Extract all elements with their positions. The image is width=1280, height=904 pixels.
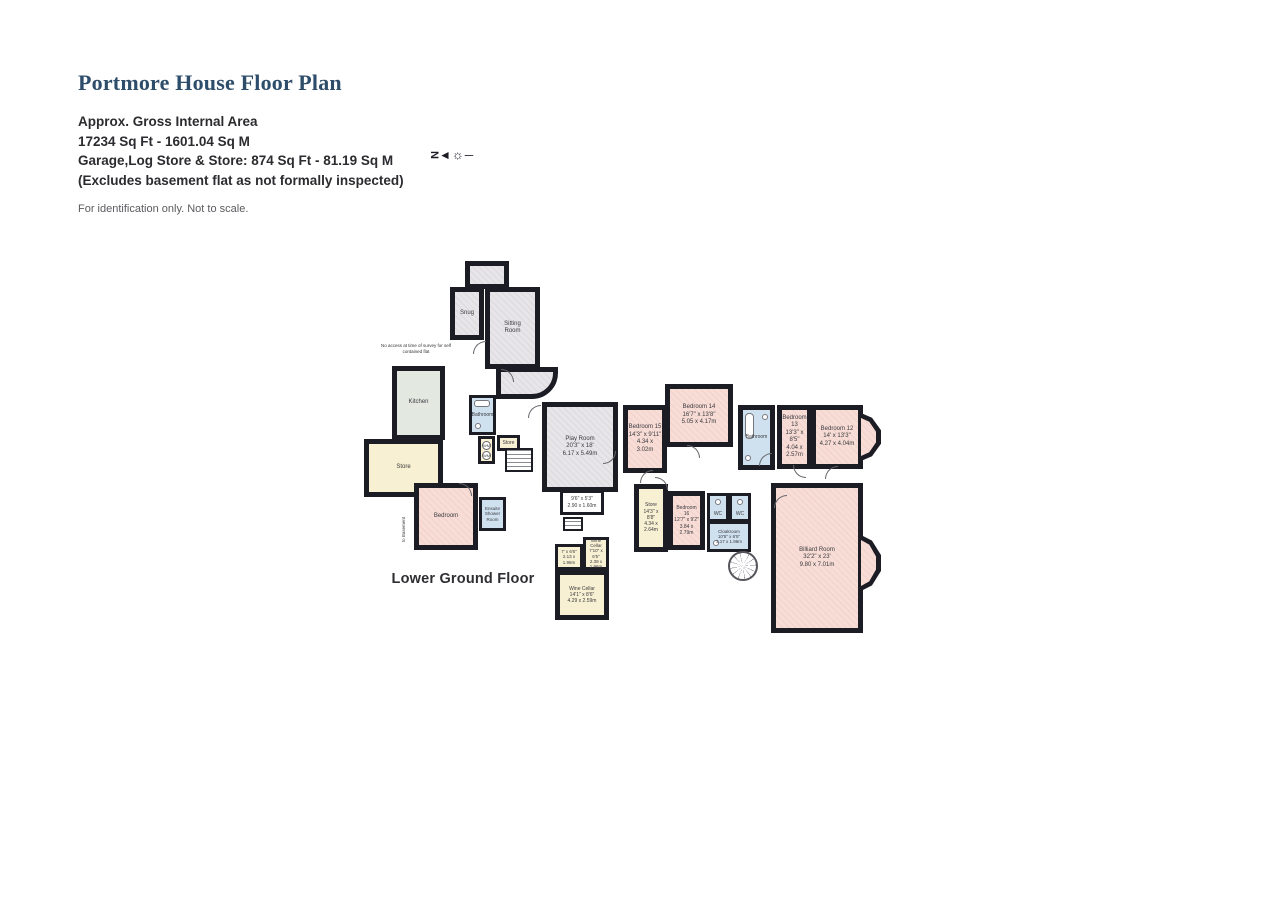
room-ensuite-shower: Ensuite Shower Room <box>479 497 506 531</box>
room-label: WC <box>714 511 722 517</box>
room-dims-ft: 14'3" x 9'11" <box>629 432 661 440</box>
room-label: Bedroom 16 <box>673 505 700 518</box>
room-dims-m: 2.13 x 1.98m <box>558 554 580 564</box>
room-label: Play Room <box>565 436 594 444</box>
room-dims-ft: 14' x 13'3" <box>823 433 850 441</box>
room-dims-ft: 7'10" x 6'5" <box>586 548 606 558</box>
room-bedroom-15: Bedroom 15 14'3" x 9'11" 4.34 x 3.02m <box>623 405 667 473</box>
staircase-cellar <box>563 517 583 531</box>
washing-machine-icon: WM <box>482 451 491 460</box>
room-label: Bedroom <box>434 513 458 521</box>
room-label: Ensuite Shower Room <box>484 506 502 522</box>
room-label: Kitchen <box>408 399 428 407</box>
room-bedroom-13: Bedroom 13 13'3" x 8'5" 4.04 x 2.57m <box>777 405 812 469</box>
room-label: Bedroom 13 <box>782 415 807 430</box>
room-sitting: Sitting Room <box>485 287 540 369</box>
room-tower-top <box>465 261 509 289</box>
compass-arrow-icon: ◄ <box>439 148 451 162</box>
room-utility-nook: WM WM <box>478 436 495 464</box>
room-dims-m: 5.05 x 4.17m <box>682 419 717 427</box>
area-line-3: Garage,Log Store & Store: 874 Sq Ft - 81… <box>78 151 558 171</box>
room-dims-ft: 32'2" x 23' <box>803 554 830 562</box>
door-arc-icon <box>473 341 486 354</box>
area-line-4: (Excludes basement flat as not formally … <box>78 171 558 191</box>
room-cellar-a: 7' x 6'6" 2.13 x 1.98m <box>555 544 583 570</box>
room-label: Bathroom <box>472 412 494 418</box>
room-dims-m: 4.34 x 3.02m <box>628 439 662 454</box>
room-dims-m: 6.17 x 5.49m <box>563 451 598 459</box>
no-access-note: No access at time of survey for self con… <box>380 343 452 355</box>
room-dims-m: 3.17 x 1.96m <box>716 539 742 544</box>
washing-machine-icon: WM <box>482 441 491 450</box>
floor-label: Lower Ground Floor <box>383 571 543 587</box>
room-dims-m: 9.80 x 7.01m <box>800 562 835 570</box>
room-label: Bedroom 15 <box>629 424 662 432</box>
room-dims-ft: 16'7" x 13'8" <box>683 412 716 420</box>
room-label: Sitting Room <box>500 321 526 336</box>
room-wine-cellar: Wine Cellar 14'1" x 8'6" 4.29 x 2.59m <box>555 570 609 620</box>
room-bedroom-12: Bedroom 12 14' x 13'3" 4.27 x 4.04m <box>811 405 863 469</box>
room-play: Play Room 20'3" x 18' 6.17 x 5.49m <box>542 402 618 492</box>
room-dims-m: 2.90 x 1.60m <box>568 503 597 509</box>
room-cloakroom: Cloakroom 10'5" x 6'5" 3.17 x 1.96m <box>707 521 751 552</box>
compass-sun-icon: ☼ <box>452 147 464 162</box>
room-bedroom-14: Bedroom 14 16'7" x 13'8" 5.05 x 4.17m <box>665 384 733 447</box>
door-arc-icon <box>528 405 541 418</box>
staircase-main <box>505 448 533 472</box>
compass-icon: N◄☼─ <box>430 147 473 162</box>
room-label: Bathroom <box>746 434 768 440</box>
room-dims-ft: 20'3" x 18' <box>566 443 593 451</box>
bay-window-billiard <box>861 535 881 591</box>
room-dims-m: 4.27 x 4.04m <box>820 441 855 449</box>
door-arc-icon <box>793 465 806 478</box>
compass-north-letter: N <box>428 151 440 159</box>
room-label: WC <box>736 511 744 517</box>
area-line-1: Approx. Gross Internal Area <box>78 112 558 132</box>
room-label: Bedroom 12 <box>821 426 854 434</box>
room-wc-2: WC <box>729 493 751 522</box>
disclaimer-text: For identification only. Not to scale. <box>78 203 558 215</box>
compass-dash: ─ <box>465 148 474 162</box>
spiral-staircase <box>728 551 758 581</box>
room-label: Wine Cellar <box>588 538 604 548</box>
room-store-lower: Store 14'3" x 8'8" 4.34 x 2.64m <box>634 484 668 552</box>
area-line-2: 17234 Sq Ft - 1601.04 Sq M <box>78 132 558 152</box>
room-dims-m: 2.39 x 1.96m <box>586 559 606 569</box>
room-dims-m: 4.34 x 2.64m <box>639 521 663 534</box>
room-dims-ft: 14'3" x 8'8" <box>639 509 663 522</box>
room-wc-1: WC <box>707 493 729 522</box>
room-label: Store <box>396 464 410 472</box>
room-kitchen: Kitchen <box>392 366 445 440</box>
floor-plan: Snug Sitting Room Kitchen Store Bedroom … <box>355 255 915 650</box>
room-bathroom-center: Bathroom <box>469 395 496 435</box>
room-dims-m: 4.04 x 2.57m <box>782 445 807 460</box>
room-9-6: 9'6" x 5'3" 2.90 x 1.60m <box>560 490 604 515</box>
room-dims-m: 4.29 x 2.59m <box>568 598 597 604</box>
bay-window-bedroom-12 <box>861 413 881 461</box>
to-basement-note: to Basement <box>401 517 406 542</box>
room-label: Bedroom 14 <box>683 404 716 412</box>
room-label: Store <box>503 440 515 446</box>
room-dims-ft: 13'3" x 8'5" <box>782 430 807 445</box>
room-label: Billiard Room <box>799 547 835 555</box>
room-label: Snug <box>460 310 474 318</box>
room-bedroom-16: Bedroom 16 12'7" x 9'2" 3.84 x 2.79m <box>668 491 705 550</box>
page-title: Portmore House Floor Plan <box>78 70 558 96</box>
room-snug: Snug <box>450 287 484 340</box>
room-wine-cellar-small: Wine Cellar 7'10" x 6'5" 2.39 x 1.96m <box>583 537 609 570</box>
door-arc-icon <box>655 477 668 490</box>
room-dims-m: 3.84 x 2.79m <box>673 524 700 537</box>
header: Portmore House Floor Plan Approx. Gross … <box>78 70 558 215</box>
